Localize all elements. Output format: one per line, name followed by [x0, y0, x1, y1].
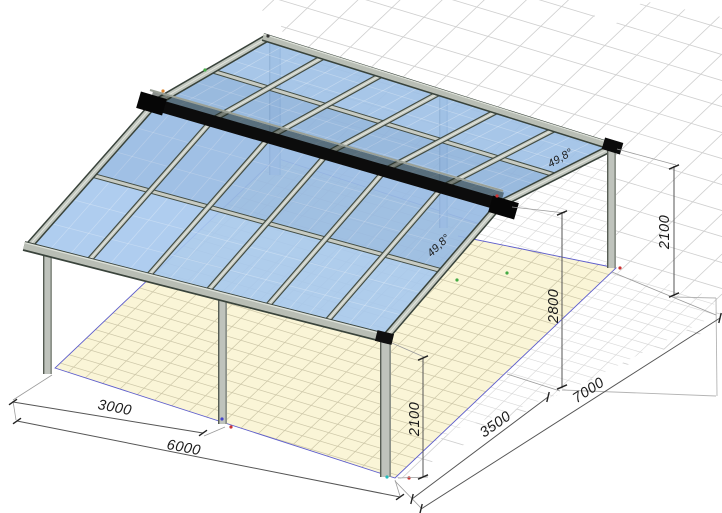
dim-width-total-label: 6000	[165, 437, 202, 459]
dim-height-rear-label: 2100	[657, 215, 673, 250]
marker-dot	[220, 417, 223, 420]
cad-viewport: 3000 6000 3500 7000 2100 2800 2100 49,8°…	[0, 0, 722, 513]
extension-line	[204, 427, 225, 436]
tick-mark	[13, 418, 21, 424]
marker-dot	[495, 194, 498, 197]
marker-dot	[266, 34, 269, 37]
marker-dot	[203, 68, 206, 71]
extension-line	[13, 401, 16, 420]
dim-width-half-label: 3000	[96, 397, 133, 419]
marker-dot	[455, 278, 458, 281]
marker-dot	[161, 89, 164, 92]
marker-dot	[505, 271, 508, 274]
dim-height-ridge-label: 2800	[546, 289, 562, 324]
marker-dot	[229, 425, 232, 428]
dim-height-front-label: 2100	[407, 402, 423, 437]
extension-line	[395, 480, 400, 496]
extension-line	[13, 375, 52, 400]
marker-dot	[618, 266, 621, 269]
extension-line	[617, 149, 676, 165]
cad-canvas: 3000 6000 3500 7000 2100 2800 2100 49,8°…	[0, 0, 722, 513]
marker-dot	[385, 475, 388, 478]
